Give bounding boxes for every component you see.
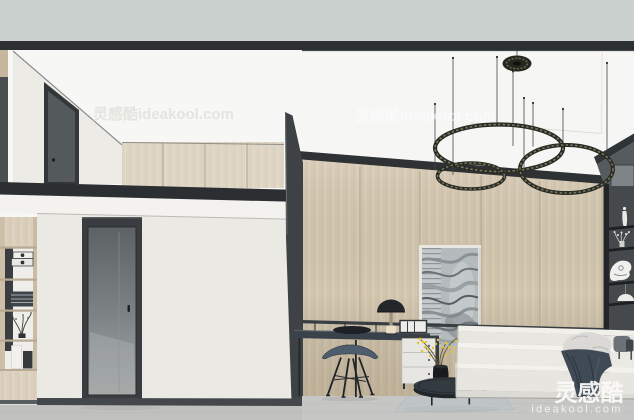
ceiling-beam (0, 41, 634, 51)
watermark-tile-center: 灵感酷ideakool.com (355, 107, 496, 125)
interior-render: 灵感酷ideakool.com 灵感酷ideakool.com 灵感酷 idea… (0, 0, 634, 420)
bookshelf (0, 217, 37, 402)
loft-level (0, 50, 302, 203)
ceiling-band (0, 0, 634, 42)
glass-door (82, 217, 142, 403)
loft-door-handle (52, 158, 55, 161)
loft-wardrobe (122, 142, 284, 188)
box-wall (37, 213, 302, 401)
watermark-brand-domain: ideakool.com (531, 404, 622, 416)
magazine-holder (400, 321, 427, 333)
door-handle (128, 305, 131, 312)
baseboard (37, 398, 302, 406)
shelf-boxes (12, 252, 34, 266)
shelf-dark-object (23, 351, 33, 369)
watermark-brand-name: 灵感酷 (555, 380, 624, 406)
desk-bowl (333, 326, 371, 334)
chandelier-disc (503, 56, 532, 72)
shelf-white-box (12, 346, 22, 369)
watermark-tile-left: 灵感酷ideakool.com (93, 105, 234, 123)
lower-room-box (0, 195, 302, 404)
shelf-books (11, 292, 33, 307)
